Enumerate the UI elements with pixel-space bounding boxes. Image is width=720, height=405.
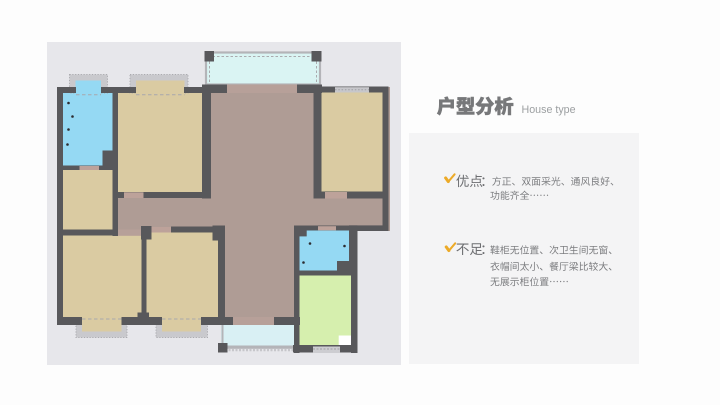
svg-text:House type: House type	[522, 104, 576, 116]
